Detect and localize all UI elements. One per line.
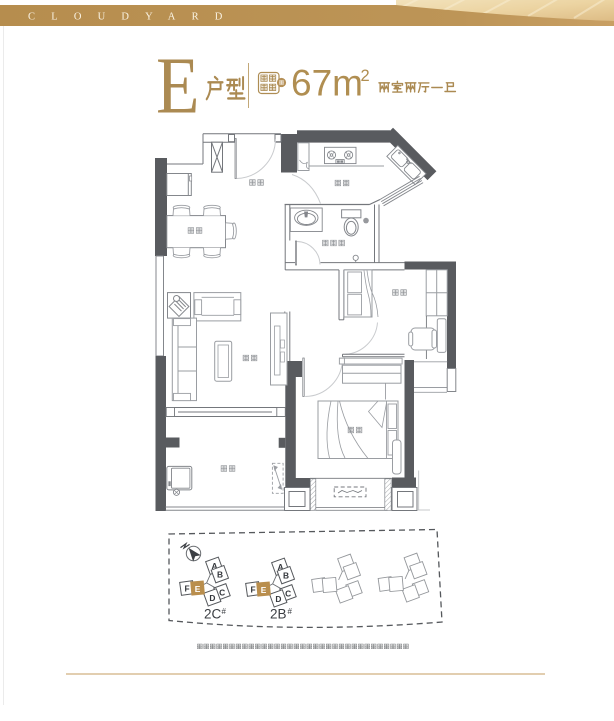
svg-text:F: F [184,584,189,594]
svg-text:B: B [283,571,289,581]
svg-text:2: 2 [361,67,370,85]
svg-text:#: # [222,607,227,616]
svg-text:E: E [156,43,199,131]
svg-text:F: F [250,585,255,595]
svg-text:C: C [285,588,291,598]
svg-text:67m: 67m [291,63,363,104]
svg-text:C: C [219,587,225,597]
svg-text:2B: 2B [270,607,287,622]
svg-text:CLOUDYARD: CLOUDYARD [28,12,239,23]
svg-text:2C: 2C [204,607,222,622]
svg-text:B: B [217,570,223,580]
svg-text:E: E [261,585,267,595]
svg-text:D: D [209,593,215,603]
svg-text:D: D [275,594,281,604]
svg-text:#: # [288,607,293,616]
svg-text:E: E [195,584,201,594]
